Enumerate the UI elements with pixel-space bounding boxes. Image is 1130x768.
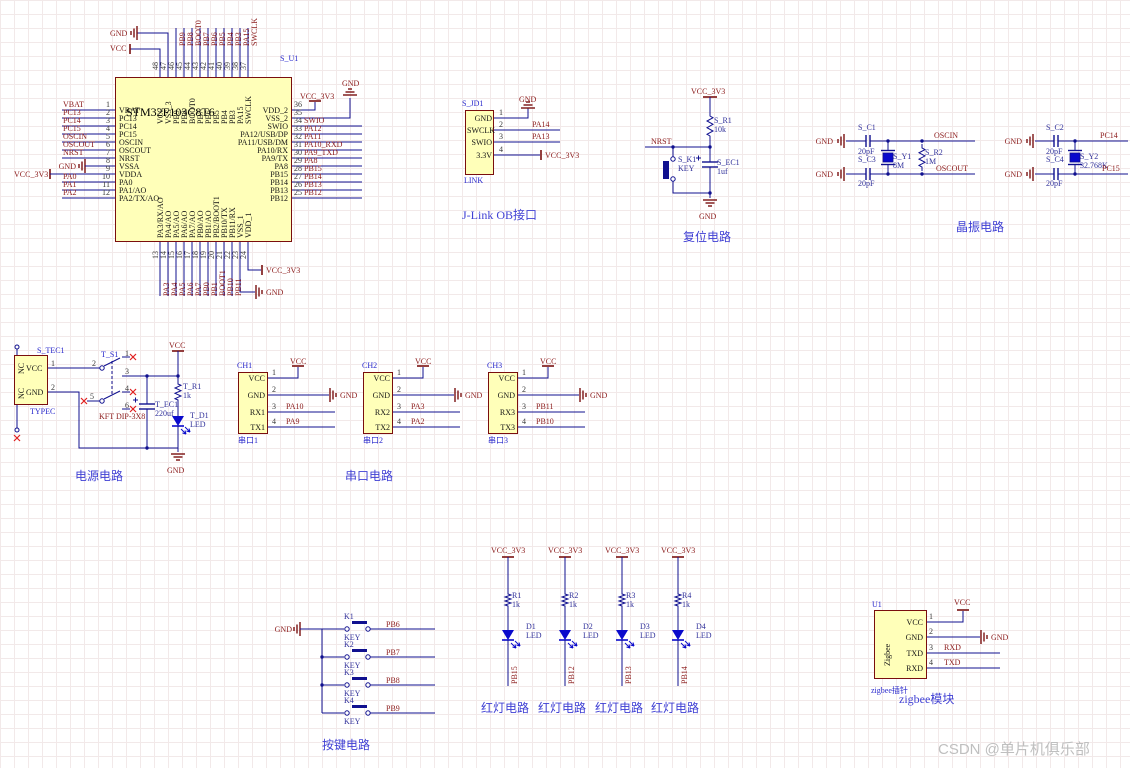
pin-name: VCC bbox=[490, 374, 515, 383]
pin-name: TX1 bbox=[240, 423, 265, 432]
pin-name: TX3 bbox=[490, 423, 515, 432]
value-label: 8M bbox=[893, 161, 904, 170]
value-label: 1k bbox=[512, 600, 520, 609]
net-label: VCC_3V3 bbox=[266, 266, 300, 275]
value-label: 1k bbox=[682, 600, 690, 609]
value-label: 10k bbox=[714, 125, 726, 134]
value-label: T_D1 bbox=[190, 411, 209, 420]
value-label: 20pF bbox=[858, 179, 874, 188]
resistor-symbol bbox=[619, 590, 625, 610]
contact-circle bbox=[100, 366, 104, 370]
net-label: GND bbox=[1000, 170, 1022, 179]
section-title: 晶振电路 bbox=[956, 221, 1004, 234]
net-label: GND bbox=[270, 625, 292, 634]
net-label: PB9 bbox=[386, 704, 400, 713]
value-label: LED bbox=[696, 631, 712, 640]
resistor-symbol bbox=[707, 112, 713, 140]
section-title: zigbee模块 bbox=[899, 693, 954, 706]
pin-name: VCC bbox=[26, 364, 42, 373]
pin-name: GND bbox=[467, 114, 492, 123]
wire bbox=[248, 242, 261, 270]
junction-dot bbox=[886, 139, 889, 142]
section-title: 红灯电路 bbox=[651, 702, 699, 715]
net-label: KFT DIP-3X8 bbox=[99, 412, 145, 421]
value-label: R2 bbox=[569, 591, 578, 600]
pin-name: GND bbox=[365, 391, 390, 400]
pin-number: 2 bbox=[397, 385, 401, 394]
contact-circle bbox=[366, 627, 370, 631]
value-label: LED bbox=[190, 420, 206, 429]
net-label: PB11 bbox=[536, 402, 554, 411]
pin-number: 2 bbox=[51, 383, 55, 392]
designator-label: 串口2 bbox=[363, 436, 383, 445]
contact-circle bbox=[345, 683, 349, 687]
section-title: 电源电路 bbox=[75, 470, 123, 483]
pin-number: 1 bbox=[929, 612, 933, 621]
value-label: S_C1 bbox=[858, 123, 876, 132]
key-actuator bbox=[663, 161, 669, 179]
pin-number: 4 bbox=[929, 658, 933, 667]
junction-dot bbox=[671, 145, 674, 148]
watermark: CSDN @单片机俱乐部 bbox=[938, 738, 1090, 759]
net-label: GND bbox=[56, 162, 76, 171]
pin-name: RX1 bbox=[240, 408, 265, 417]
net-label: VCC_3V3 bbox=[545, 151, 579, 160]
section-title: 红灯电路 bbox=[538, 702, 586, 715]
button-bar bbox=[352, 677, 367, 680]
value-label: R1 bbox=[512, 591, 521, 600]
value-label: D4 bbox=[696, 622, 706, 631]
pin-name: RXD bbox=[895, 664, 923, 673]
contact-circle bbox=[345, 627, 349, 631]
contact-circle bbox=[671, 177, 675, 181]
pin-number: 3 bbox=[522, 402, 526, 411]
net-label: VCC bbox=[540, 357, 556, 366]
net-label: PB6 bbox=[386, 620, 400, 629]
value-label: R4 bbox=[682, 591, 691, 600]
section-title: 串口电路 bbox=[345, 470, 393, 483]
designator-label: S_TEC1 bbox=[37, 346, 65, 355]
net-label: PA2 bbox=[411, 417, 425, 426]
net-label: PA14 bbox=[532, 120, 550, 129]
value-label: D2 bbox=[583, 622, 593, 631]
junction-dot bbox=[176, 374, 179, 377]
designator-label: 串口3 bbox=[488, 436, 508, 445]
pin-number: 25 bbox=[294, 188, 302, 197]
net-label: PB13 bbox=[624, 666, 633, 684]
crystal-symbol bbox=[1070, 153, 1080, 162]
pin-name: NC bbox=[17, 363, 26, 374]
value-label: 1k bbox=[183, 391, 191, 400]
section-title: 红灯电路 bbox=[595, 702, 643, 715]
junction-dot bbox=[920, 172, 923, 175]
pin-number: 4 bbox=[397, 417, 401, 426]
net-label: PA3 bbox=[411, 402, 425, 411]
pin-name: 3.3V bbox=[467, 151, 492, 160]
button-bar bbox=[352, 649, 367, 652]
section-title: 复位电路 bbox=[683, 231, 731, 244]
net-label: GND bbox=[811, 137, 833, 146]
net-label: GND bbox=[699, 212, 716, 221]
zigbee-body-label: Zigbee bbox=[883, 644, 892, 666]
pin-name: RX2 bbox=[365, 408, 390, 417]
junction-dot bbox=[886, 172, 889, 175]
net-label: PB15 bbox=[510, 666, 519, 684]
net-label: GND bbox=[266, 288, 283, 297]
junction-dot bbox=[145, 374, 148, 377]
net-label: SWCLK bbox=[250, 18, 259, 46]
designator-label: TYPEC bbox=[30, 407, 55, 416]
pin-number: 2 bbox=[499, 120, 503, 129]
pin-name: GND bbox=[490, 391, 515, 400]
wire bbox=[673, 181, 710, 193]
schematic-canvas: CSDN @单片机俱乐部 STM32F103C8T6S_U148VCCVCC47… bbox=[0, 0, 1130, 768]
junction-dot bbox=[1073, 172, 1076, 175]
pin-number: 1 bbox=[51, 359, 55, 368]
net-label: GND bbox=[811, 170, 833, 179]
net-label: GND bbox=[590, 391, 607, 400]
pin-number: 1 bbox=[522, 368, 526, 377]
net-label: NRST bbox=[651, 137, 671, 146]
mcu-designator: S_U1 bbox=[280, 54, 298, 63]
section-title: 红灯电路 bbox=[481, 702, 529, 715]
led-symbol bbox=[672, 630, 684, 640]
net-label: GND bbox=[110, 29, 127, 38]
pin-number: 2 bbox=[92, 359, 96, 368]
pin-number: 4 bbox=[522, 417, 526, 426]
value-label: KEY bbox=[344, 717, 360, 726]
pin-name: SWIO bbox=[467, 138, 492, 147]
resistor-symbol bbox=[505, 590, 511, 610]
crystal-symbol bbox=[883, 153, 893, 162]
pin-name: NC bbox=[17, 388, 26, 399]
value-label: T_EC1 bbox=[155, 400, 178, 409]
pin-name: GND bbox=[26, 388, 43, 397]
junction-dot bbox=[1073, 139, 1076, 142]
pin-number: 4 bbox=[272, 417, 276, 426]
value-label: K3 bbox=[344, 668, 354, 677]
pin-number: 4 bbox=[499, 145, 503, 154]
pin-name: VDD_1 bbox=[244, 213, 253, 238]
pin-name: VCC bbox=[365, 374, 390, 383]
pin-number: 24 bbox=[239, 251, 248, 259]
pin-number: 3 bbox=[397, 402, 401, 411]
net-label: VCC_3V3 bbox=[661, 546, 695, 555]
net-label: GND bbox=[465, 391, 482, 400]
net-label: VCC bbox=[415, 357, 431, 366]
pin-number: 12 bbox=[96, 188, 110, 197]
value-label: K4 bbox=[344, 696, 354, 705]
pin-number: 4 bbox=[125, 384, 129, 393]
pin-number: 3 bbox=[499, 132, 503, 141]
net-label: OSCIN bbox=[934, 131, 958, 140]
value-label: LED bbox=[526, 631, 542, 640]
net-label: GND bbox=[991, 633, 1008, 642]
net-label: PB11 bbox=[234, 279, 243, 297]
contact-circle bbox=[366, 655, 370, 659]
value-label: 1k bbox=[569, 600, 577, 609]
net-label: NRST bbox=[63, 148, 83, 157]
value-label: D1 bbox=[526, 622, 536, 631]
net-label: GND bbox=[1000, 137, 1022, 146]
net-label: OSCOUT bbox=[936, 164, 968, 173]
contact-circle bbox=[366, 711, 370, 715]
pin-number: 1 bbox=[272, 368, 276, 377]
net-label: PA2 bbox=[63, 188, 77, 197]
designator-label: CH2 bbox=[362, 361, 377, 370]
net-label: PA10 bbox=[286, 402, 304, 411]
net-label: PB7 bbox=[386, 648, 400, 657]
net-label: PC15 bbox=[1102, 164, 1120, 173]
junction-dot bbox=[708, 191, 711, 194]
pin-number: 3 bbox=[272, 402, 276, 411]
designator-label: 串口1 bbox=[238, 436, 258, 445]
designator-label: S_JD1 bbox=[462, 99, 483, 108]
net-label: PB8 bbox=[386, 676, 400, 685]
net-label: GND bbox=[519, 95, 536, 104]
pin-name: GND bbox=[240, 391, 265, 400]
pin-number: 1 bbox=[125, 349, 129, 358]
value-label: 1uf bbox=[717, 167, 728, 176]
pin-name: RX3 bbox=[490, 408, 515, 417]
designator-label: T_S1 bbox=[101, 350, 118, 359]
value-label: K1 bbox=[344, 612, 354, 621]
net-label: VCC_3V3 bbox=[491, 546, 525, 555]
value-label: R3 bbox=[626, 591, 635, 600]
net-label: PB10 bbox=[536, 417, 554, 426]
designator-label: U1 bbox=[872, 600, 882, 609]
value-label: KEY bbox=[678, 164, 694, 173]
section-title: J-Link OB接口 bbox=[462, 209, 537, 222]
value-label: S_EC1 bbox=[717, 158, 740, 167]
net-label: PA9 bbox=[286, 417, 300, 426]
net-label: VCC_3V3 bbox=[300, 92, 334, 101]
net-label: VCC_3V3 bbox=[548, 546, 582, 555]
net-label: VCC bbox=[290, 357, 306, 366]
contact-circle bbox=[345, 655, 349, 659]
value-label: S_Y1 bbox=[893, 152, 911, 161]
junction-dot bbox=[920, 139, 923, 142]
contact-circle bbox=[15, 428, 19, 432]
wire bbox=[137, 33, 168, 77]
pin-number: 2 bbox=[522, 385, 526, 394]
value-label: LED bbox=[640, 631, 656, 640]
net-label: GND bbox=[340, 391, 357, 400]
pin-name: TX2 bbox=[365, 423, 390, 432]
pin-number: 2 bbox=[929, 627, 933, 636]
pin-number: 1 bbox=[499, 108, 503, 117]
value-label: T_R1 bbox=[183, 382, 201, 391]
value-label: S_R1 bbox=[714, 116, 732, 125]
button-bar bbox=[352, 621, 367, 624]
contact-circle bbox=[15, 345, 19, 349]
led-symbol bbox=[616, 630, 628, 640]
pin-name: GND bbox=[895, 633, 923, 642]
value-label: D3 bbox=[640, 622, 650, 631]
resistor-symbol bbox=[675, 590, 681, 610]
net-label: PC14 bbox=[1100, 131, 1118, 140]
net-label: GND bbox=[342, 79, 359, 88]
pin-name: VCC bbox=[895, 618, 923, 627]
led-symbol bbox=[559, 630, 571, 640]
value-label: 220uf bbox=[155, 409, 174, 418]
pin-number: 1 bbox=[397, 368, 401, 377]
value-label: S_C2 bbox=[1046, 123, 1064, 132]
pin-name: PA2/TX/AO bbox=[119, 194, 159, 203]
net-label: TXD bbox=[944, 658, 960, 667]
pin-name: TXD bbox=[895, 649, 923, 658]
pin-name: SWCLK bbox=[467, 126, 492, 135]
net-label: RXD bbox=[944, 643, 961, 652]
pin-number: 3 bbox=[929, 643, 933, 652]
junction-dot bbox=[145, 446, 148, 449]
contact-circle bbox=[366, 683, 370, 687]
net-label: PB12 bbox=[304, 188, 322, 197]
value-label: S_C3 bbox=[858, 155, 876, 164]
net-label: VCC bbox=[954, 598, 970, 607]
net-label: PB14 bbox=[680, 666, 689, 684]
value-label: K2 bbox=[344, 640, 354, 649]
pin-number: 6 bbox=[125, 401, 129, 410]
contact-circle bbox=[345, 711, 349, 715]
pin-name: VCC bbox=[240, 374, 265, 383]
value-label: S_C4 bbox=[1046, 155, 1064, 164]
net-label: VCC_3V3 bbox=[691, 87, 725, 96]
designator-label: CH1 bbox=[237, 361, 252, 370]
pin-number: 37 bbox=[239, 62, 248, 70]
led-symbol bbox=[502, 630, 514, 640]
resistor-symbol bbox=[562, 590, 568, 610]
value-label: S_K1 bbox=[678, 155, 696, 164]
junction-dot bbox=[708, 145, 711, 148]
net-label: VCC_3V3 bbox=[14, 170, 48, 179]
net-label: VCC bbox=[169, 341, 185, 350]
value-label: S_R2 bbox=[925, 148, 943, 157]
value-label: LED bbox=[583, 631, 599, 640]
pin-number: 2 bbox=[272, 385, 276, 394]
pin-name: PB12 bbox=[228, 194, 288, 203]
net-label: VCC bbox=[110, 44, 126, 53]
button-bar bbox=[352, 705, 367, 708]
contact-circle bbox=[100, 399, 104, 403]
section-title: 按键电路 bbox=[322, 739, 370, 752]
value-label: 1M bbox=[925, 157, 936, 166]
pin-number: 3 bbox=[125, 367, 129, 376]
value-label: S_Y2 bbox=[1080, 152, 1098, 161]
net-label: GND bbox=[167, 466, 184, 475]
contact-circle bbox=[671, 157, 675, 161]
net-label: VCC_3V3 bbox=[605, 546, 639, 555]
value-label: 20pF bbox=[1046, 179, 1062, 188]
designator-label: CH3 bbox=[487, 361, 502, 370]
designator-label: LINK bbox=[464, 176, 483, 185]
pin-number: 5 bbox=[90, 392, 94, 401]
net-label: PA13 bbox=[532, 132, 550, 141]
net-label: PB12 bbox=[567, 666, 576, 684]
value-label: 1k bbox=[626, 600, 634, 609]
